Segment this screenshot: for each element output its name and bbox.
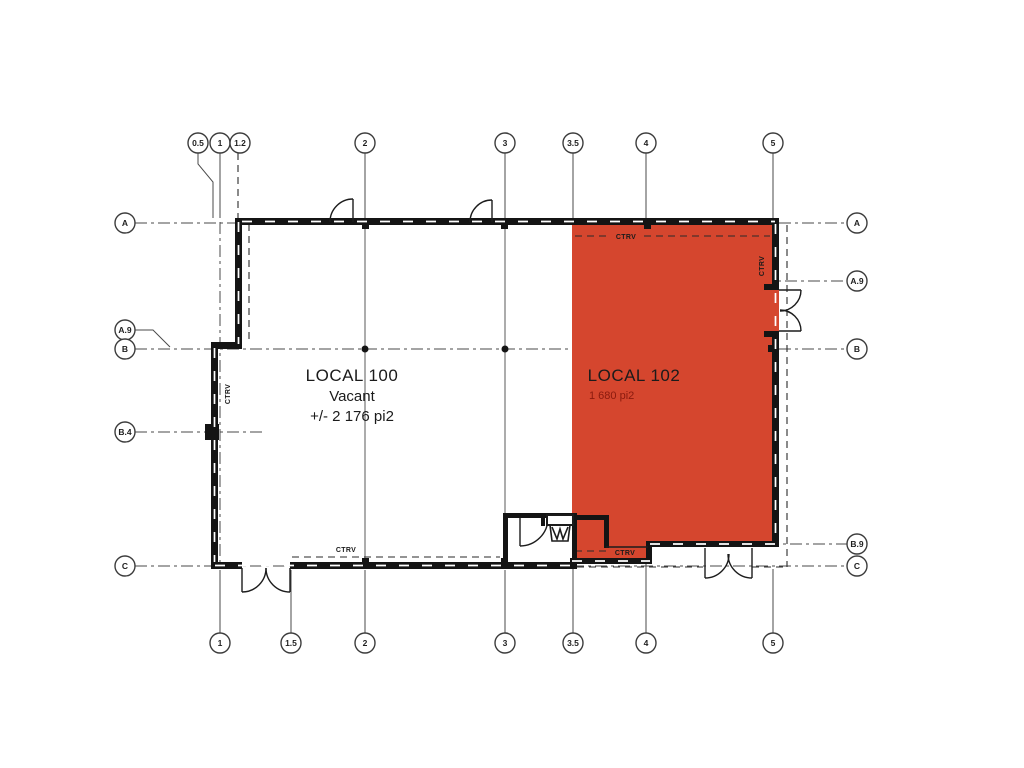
grid-bubble-left-b4: B.4 bbox=[115, 422, 135, 442]
svg-text:3.5: 3.5 bbox=[567, 638, 579, 648]
svg-text:4: 4 bbox=[644, 138, 649, 148]
door-double-bottom-right bbox=[705, 548, 752, 578]
grid-bubble-bottom-3-5: 3.5 bbox=[563, 633, 583, 653]
local-100-area-label: +/- 2 176 pi2 bbox=[310, 408, 394, 425]
svg-text:2: 2 bbox=[363, 638, 368, 648]
grid-bubble-right-a9: A.9 bbox=[847, 271, 867, 291]
door-double-right bbox=[779, 290, 801, 331]
svg-text:1.5: 1.5 bbox=[285, 638, 297, 648]
svg-text:0.5: 0.5 bbox=[192, 138, 204, 148]
grid-bubble-top-1: 1 bbox=[210, 133, 230, 153]
grid-bubble-left-a: A bbox=[115, 213, 135, 233]
svg-text:C: C bbox=[854, 561, 860, 571]
svg-text:B.9: B.9 bbox=[850, 539, 864, 549]
grid-bubbles-bottom: 1 1.5 2 3 3.5 4 5 bbox=[210, 633, 783, 653]
ctrv-note-red-bottom: CTRV bbox=[615, 550, 635, 557]
svg-text:5: 5 bbox=[771, 638, 776, 648]
svg-text:B.4: B.4 bbox=[118, 427, 132, 437]
svg-text:B: B bbox=[854, 344, 860, 354]
local-102-area-label: 1 680 pi2 bbox=[589, 390, 634, 402]
ctrv-note-bottom: CTRV bbox=[336, 547, 356, 554]
grid-bubble-bottom-3: 3 bbox=[495, 633, 515, 653]
grid-bubble-left-c: C bbox=[115, 556, 135, 576]
svg-text:1: 1 bbox=[218, 638, 223, 648]
svg-text:A: A bbox=[122, 218, 128, 228]
grid-bubbles-top: 0.5 1 1.2 2 3 3.5 4 5 bbox=[188, 133, 783, 153]
grid-bubble-right-a: A bbox=[847, 213, 867, 233]
grid-bubble-left-a9: A.9 bbox=[115, 320, 135, 340]
grid-bubble-right-b: B bbox=[847, 339, 867, 359]
svg-text:4: 4 bbox=[644, 638, 649, 648]
grid-bubble-bottom-4: 4 bbox=[636, 633, 656, 653]
toilet-icon bbox=[552, 527, 568, 539]
grid-bubble-top-5: 5 bbox=[763, 133, 783, 153]
grid-bubble-top-3-5: 3.5 bbox=[563, 133, 583, 153]
svg-text:5: 5 bbox=[771, 138, 776, 148]
svg-text:B: B bbox=[122, 344, 128, 354]
svg-text:C: C bbox=[122, 561, 128, 571]
grid-bubble-right-b9: B.9 bbox=[847, 534, 867, 554]
grid-bubble-top-2: 2 bbox=[355, 133, 375, 153]
local-100-status: Vacant bbox=[329, 388, 375, 405]
svg-text:A: A bbox=[854, 218, 860, 228]
local-100-name: LOCAL 100 bbox=[306, 366, 399, 385]
toilet-tank bbox=[547, 515, 573, 525]
grid-bubbles-left: A A.9 B B.4 C bbox=[115, 213, 135, 576]
ctrv-note-top: CTRV bbox=[616, 234, 636, 241]
door-double-bottom-left bbox=[242, 568, 290, 592]
grid-bubble-bottom-5: 5 bbox=[763, 633, 783, 653]
grid-bubble-left-b: B bbox=[115, 339, 135, 359]
svg-text:2: 2 bbox=[363, 138, 368, 148]
floor-plan-page: LOCAL 100 Vacant +/- 2 176 pi2 LOCAL 102… bbox=[0, 0, 1024, 768]
svg-text:1: 1 bbox=[218, 138, 223, 148]
floor-plan-drawing: LOCAL 100 Vacant +/- 2 176 pi2 LOCAL 102… bbox=[0, 0, 1024, 768]
grid-bubble-top-3: 3 bbox=[495, 133, 515, 153]
ctrv-note-left-wall: CTRV bbox=[225, 384, 232, 404]
svg-text:A.9: A.9 bbox=[850, 276, 864, 286]
grid-bubble-top-4: 4 bbox=[636, 133, 656, 153]
local-102-name: LOCAL 102 bbox=[588, 366, 681, 385]
svg-text:3.5: 3.5 bbox=[567, 138, 579, 148]
washroom bbox=[547, 515, 573, 541]
grid-bubble-bottom-1: 1 bbox=[210, 633, 230, 653]
svg-text:3: 3 bbox=[503, 638, 508, 648]
grid-bubbles-right: A A.9 B B.9 C bbox=[847, 213, 867, 576]
svg-text:1.2: 1.2 bbox=[234, 138, 246, 148]
grid-bubble-bottom-1-5: 1.5 bbox=[281, 633, 301, 653]
svg-text:3: 3 bbox=[503, 138, 508, 148]
grid-bubble-top-1-2: 1.2 bbox=[230, 133, 250, 153]
svg-text:A.9: A.9 bbox=[118, 325, 132, 335]
grid-bubble-right-c: C bbox=[847, 556, 867, 576]
ctrv-note-right-wall: CTRV bbox=[759, 256, 766, 276]
grid-bubble-bottom-2: 2 bbox=[355, 633, 375, 653]
grid-bubble-top-0-5: 0.5 bbox=[188, 133, 208, 153]
